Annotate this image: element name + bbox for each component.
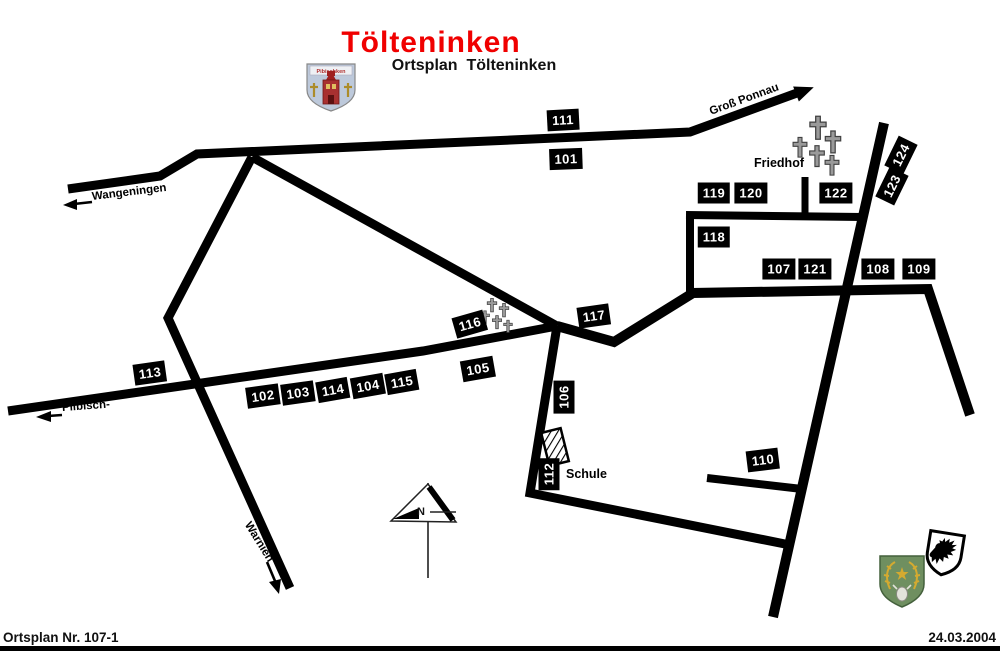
footer-plan-number: Ortsplan Nr. 107-1: [3, 630, 119, 645]
map-canvas: Pibischken: [0, 0, 1000, 651]
road-110-stub: [707, 478, 802, 489]
house-number-108: 108: [861, 259, 894, 280]
house-number-107: 107: [762, 259, 795, 280]
house-number-121: 121: [798, 259, 831, 280]
house-number-120: 120: [734, 183, 767, 204]
road-school-loop: [530, 326, 790, 545]
house-number-117: 117: [576, 303, 611, 328]
house-number-106: 106: [554, 380, 575, 413]
bottom-border: [0, 646, 1000, 651]
friedhof-label: Friedhof: [754, 156, 804, 170]
house-number-118: 118: [698, 227, 730, 248]
road-main-east: [557, 289, 970, 415]
house-number-101: 101: [549, 148, 583, 170]
schule-label: Schule: [566, 467, 607, 481]
footer-date: 24.03.2004: [928, 630, 996, 645]
compass-north-icon: [391, 483, 456, 578]
wangeningen-arrow-icon: [63, 199, 92, 210]
house-number-109: 109: [902, 259, 935, 280]
eagle-crest-icon: [924, 531, 964, 578]
pilbisch-arrow-icon: [36, 411, 62, 422]
house-number-113: 113: [132, 360, 167, 385]
house-number-110: 110: [746, 448, 781, 473]
house-number-112: 112: [539, 458, 560, 490]
town-plan-map: Pibischken: [0, 0, 1000, 651]
house-number-122: 122: [819, 183, 852, 204]
road-block-top: [686, 215, 862, 217]
house-number-111: 111: [547, 109, 580, 132]
gross-ponnau-arrow-icon: [793, 80, 816, 102]
map-subtitle: Ortsplan Tölteninken: [392, 57, 556, 75]
hunter-crest-icon: [880, 556, 924, 607]
village-crest-icon: Pibischken: [307, 64, 355, 111]
map-title: Tölteninken: [341, 26, 520, 60]
road-wangeningen-to-gross-ponnau: [68, 93, 797, 189]
compass-north-label: N: [417, 506, 425, 518]
house-number-119: 119: [698, 183, 730, 204]
road-central-diagonal: [252, 157, 557, 326]
